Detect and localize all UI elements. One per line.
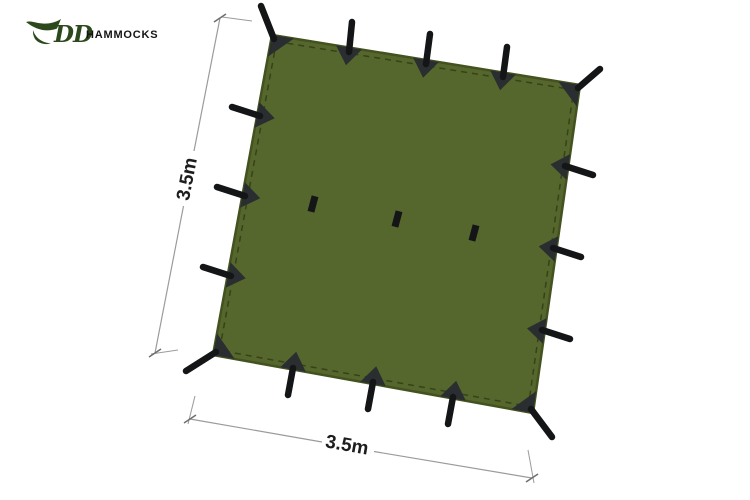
attachment-strap — [232, 107, 260, 116]
attachment-strap — [542, 330, 570, 339]
attachment-strap — [503, 47, 507, 77]
tarp-top-view — [186, 6, 600, 437]
width-dimension-label: 3.5m — [324, 431, 370, 459]
tarp-diagram-canvas: DD HAMMOCKS — [0, 0, 750, 500]
product-diagram-page: DD HAMMOCKS — [0, 0, 750, 500]
attachment-strap — [288, 368, 293, 395]
dimension-tick — [526, 474, 538, 482]
logo-suffix-text: HAMMOCKS — [86, 29, 158, 41]
dd-hammocks-logo: DD HAMMOCKS — [26, 19, 158, 48]
attachment-strap — [553, 248, 581, 257]
attachment-strap — [531, 409, 552, 437]
attachment-strap — [565, 166, 593, 175]
hammock-swoosh-tail-icon — [33, 30, 51, 44]
attachment-strap — [261, 6, 274, 39]
dimension-line — [155, 206, 184, 353]
attachment-strap — [203, 267, 231, 276]
attachment-strap — [578, 69, 600, 88]
width-dimension: 3.5m — [184, 396, 538, 483]
height-dimension-label: 3.5m — [173, 156, 202, 203]
extension-line — [222, 17, 252, 21]
dimension-line — [190, 419, 322, 442]
attachment-strap — [448, 397, 453, 424]
dimension-line — [374, 452, 532, 479]
dimension-line — [194, 18, 220, 151]
attachment-strap — [217, 187, 245, 196]
attachment-strap — [368, 382, 373, 409]
attachment-strap — [186, 352, 216, 371]
attachment-strap — [426, 34, 430, 64]
attachment-strap — [349, 22, 352, 52]
